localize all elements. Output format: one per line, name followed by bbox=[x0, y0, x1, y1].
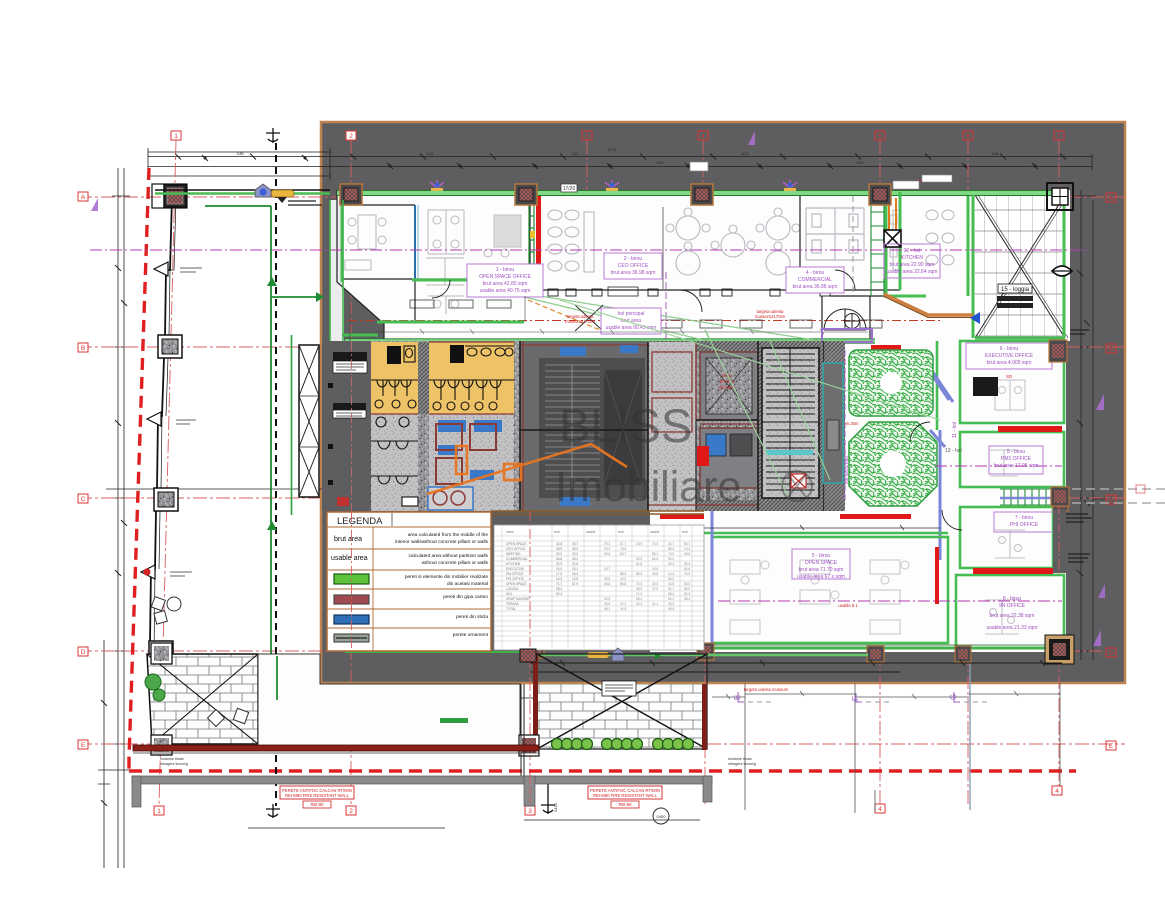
svg-text:24.0: 24.0 bbox=[556, 567, 562, 571]
svg-text:PHI OFFICE: PHI OFFICE bbox=[1010, 522, 1039, 528]
svg-text:96.6: 96.6 bbox=[684, 552, 690, 556]
svg-text:85.0: 85.0 bbox=[668, 547, 674, 551]
svg-text:43.8: 43.8 bbox=[668, 582, 674, 586]
svg-text:33.6: 33.6 bbox=[604, 602, 610, 606]
svg-text:28.4: 28.4 bbox=[556, 587, 562, 591]
svg-text:53.0: 53.0 bbox=[684, 582, 690, 586]
svg-text:pereti din sticla: pereti din sticla bbox=[456, 614, 488, 620]
svg-text:40.4: 40.4 bbox=[652, 582, 658, 586]
svg-text:brut: brut bbox=[618, 530, 624, 534]
svg-text:80.7: 80.7 bbox=[684, 542, 690, 546]
svg-text:museum217/2m: museum217/2m bbox=[755, 314, 786, 319]
svg-text:2 - birou: 2 - birou bbox=[624, 256, 643, 262]
svg-text:KITCHEN: KITCHEN bbox=[901, 255, 923, 261]
svg-text:6 - birou: 6 - birou bbox=[1000, 346, 1019, 352]
svg-text:88.0: 88.0 bbox=[620, 572, 626, 576]
svg-text:3.85: 3.85 bbox=[237, 152, 244, 156]
svg-text:13 - hol: 13 - hol bbox=[945, 448, 962, 454]
svg-text:name: name bbox=[506, 530, 514, 534]
svg-text:C: C bbox=[81, 496, 86, 503]
svg-text:CEO OFFICE: CEO OFFICE bbox=[506, 547, 525, 551]
svg-text:SPATIU: SPATIU bbox=[719, 379, 735, 384]
svg-text:TOTAL: TOTAL bbox=[506, 607, 516, 611]
svg-text:31.1: 31.1 bbox=[652, 602, 658, 606]
svg-text:brut area 71.70 sqm: brut area 71.70 sqm bbox=[799, 567, 844, 573]
svg-text:56.1: 56.1 bbox=[652, 552, 658, 556]
svg-text:2: 2 bbox=[349, 133, 353, 140]
svg-text:EXECUTIVE OFFICE: EXECUTIVE OFFICE bbox=[985, 353, 1034, 359]
svg-text:64.6: 64.6 bbox=[684, 567, 690, 571]
svg-text:9N OFFICE: 9N OFFICE bbox=[999, 603, 1026, 609]
svg-text:calculated area without partit: calculated area without partition walls bbox=[409, 553, 489, 559]
svg-text:usable 8.1: usable 8.1 bbox=[838, 603, 858, 608]
svg-text:GRUP SANITAR: GRUP SANITAR bbox=[506, 597, 530, 601]
svg-text:40.7: 40.7 bbox=[572, 542, 578, 546]
svg-text:11 - hol: 11 - hol bbox=[952, 422, 958, 438]
svg-text:LEGENDA: LEGENDA bbox=[337, 516, 383, 527]
svg-text:brut area 22.38 sqm: brut area 22.38 sqm bbox=[990, 613, 1035, 619]
svg-text:5 - birou: 5 - birou bbox=[1007, 449, 1026, 455]
svg-text:22.9: 22.9 bbox=[556, 562, 562, 566]
svg-text:CEO OFFICE: CEO OFFICE bbox=[618, 263, 649, 269]
svg-text:1: 1 bbox=[157, 808, 161, 815]
svg-text:brut: brut bbox=[682, 530, 688, 534]
svg-text:brut area 22.90 sqm: brut area 22.90 sqm bbox=[890, 262, 935, 268]
svg-text:17/20: 17/20 bbox=[563, 186, 576, 192]
svg-text:C: C bbox=[1109, 497, 1114, 504]
svg-text:brut area 36.98 sqm: brut area 36.98 sqm bbox=[611, 270, 656, 276]
svg-text:4: 4 bbox=[701, 133, 705, 140]
svg-text:68.4: 68.4 bbox=[668, 592, 674, 596]
svg-text:4 - birou: 4 - birou bbox=[806, 270, 825, 276]
svg-text:7 - birou: 7 - birou bbox=[1015, 515, 1034, 521]
svg-text:79.2: 79.2 bbox=[604, 542, 610, 546]
svg-text:SD: SD bbox=[1006, 374, 1012, 379]
svg-text:53.0: 53.0 bbox=[668, 557, 674, 561]
svg-text:93.3: 93.3 bbox=[668, 562, 674, 566]
svg-text:PM1 OFFICE: PM1 OFFICE bbox=[1001, 456, 1032, 462]
svg-text:2.42: 2.42 bbox=[427, 152, 434, 156]
svg-text:BLISS: BLISS bbox=[559, 399, 692, 452]
svg-text:13.4: 13.4 bbox=[684, 547, 690, 551]
svg-text:45.8: 45.8 bbox=[652, 572, 658, 576]
svg-text:16.4: 16.4 bbox=[572, 572, 578, 576]
svg-text:51.8: 51.8 bbox=[636, 562, 642, 566]
svg-text:12.9: 12.9 bbox=[572, 577, 578, 581]
svg-text:55.9: 55.9 bbox=[684, 587, 690, 591]
svg-text:PHI OFFICE: PHI OFFICE bbox=[506, 577, 524, 581]
svg-text:COMMERCIAL: COMMERCIAL bbox=[798, 277, 832, 283]
svg-text:4.10: 4.10 bbox=[572, 152, 579, 156]
svg-text:83.4: 83.4 bbox=[684, 562, 690, 566]
svg-text:12 - hol: 12 - hol bbox=[904, 248, 921, 254]
svg-text:90.4: 90.4 bbox=[556, 592, 562, 596]
svg-text:usable area 40.75 sqm: usable area 40.75 sqm bbox=[480, 288, 531, 294]
svg-text:27.0: 27.0 bbox=[652, 587, 658, 591]
svg-text:14.4: 14.4 bbox=[668, 572, 674, 576]
svg-text:68.8: 68.8 bbox=[604, 582, 610, 586]
svg-text:brut area 36.86 sqm: brut area 36.86 sqm bbox=[793, 284, 838, 290]
svg-text:REI-M60 FIRE RESISTANT WALL: REI-M60 FIRE RESISTANT WALL bbox=[593, 793, 658, 798]
svg-text:32.9: 32.9 bbox=[556, 552, 562, 556]
svg-text:56.2: 56.2 bbox=[668, 577, 674, 581]
svg-text:pereti si elemente din mobilie: pereti si elemente din mobilier realizat… bbox=[405, 574, 489, 580]
svg-text:8 - birou: 8 - birou bbox=[1003, 596, 1022, 602]
svg-text:din acelasi material: din acelasi material bbox=[447, 581, 488, 587]
svg-text:3: 3 bbox=[585, 133, 589, 140]
svg-text:71.7: 71.7 bbox=[556, 582, 562, 586]
svg-text:50.2: 50.2 bbox=[684, 592, 690, 596]
svg-text:52.7: 52.7 bbox=[668, 587, 674, 591]
svg-text:without concrete pillars or wa: without concrete pillars or walls bbox=[422, 560, 489, 566]
svg-text:brut area 42.80 sqm: brut area 42.80 sqm bbox=[483, 281, 528, 287]
svg-text:hordenie titular: hordenie titular bbox=[160, 757, 185, 761]
svg-text:interior wallswithout concrete: interior wallswithout concrete pillars o… bbox=[395, 539, 489, 545]
svg-text:usable area 22.64 sqm: usable area 22.64 sqm bbox=[887, 269, 938, 275]
svg-text:museum217/2m: museum217/2m bbox=[565, 319, 596, 324]
svg-text:hol principal: hol principal bbox=[618, 311, 645, 317]
svg-text:34.7: 34.7 bbox=[668, 542, 674, 546]
svg-text:3: 3 bbox=[528, 808, 532, 815]
svg-text:5 - birou: 5 - birou bbox=[812, 553, 831, 559]
svg-text:PM OFFICE: PM OFFICE bbox=[506, 572, 523, 576]
svg-text:18.7: 18.7 bbox=[604, 567, 610, 571]
svg-text:34.5: 34.5 bbox=[620, 607, 626, 611]
svg-text:1: 1 bbox=[174, 133, 178, 140]
svg-text:3.65: 3.65 bbox=[657, 161, 664, 165]
svg-text:74.4: 74.4 bbox=[636, 582, 642, 586]
svg-text:1 - birou: 1 - birou bbox=[496, 267, 515, 273]
svg-text:OPEN SPACE: OPEN SPACE bbox=[805, 560, 838, 566]
svg-text:0450: 0450 bbox=[657, 814, 667, 819]
svg-text:29.3: 29.3 bbox=[604, 547, 610, 551]
svg-text:0450: 0450 bbox=[553, 802, 558, 812]
svg-text:brut area 4.005 sqm: brut area 4.005 sqm bbox=[987, 360, 1032, 366]
svg-text:pereti din gipa carton: pereti din gipa carton bbox=[443, 594, 488, 600]
svg-text:B: B bbox=[1109, 346, 1113, 353]
svg-text:23.9: 23.9 bbox=[684, 572, 690, 576]
svg-text:area calculated from the middl: area calculated from the middle of the bbox=[408, 532, 489, 538]
svg-text:A: A bbox=[81, 194, 86, 201]
svg-text:87.7: 87.7 bbox=[620, 542, 626, 546]
svg-text:73.3: 73.3 bbox=[668, 552, 674, 556]
svg-text:Imobiliare: Imobiliare bbox=[555, 463, 741, 511]
svg-text:5.35: 5.35 bbox=[992, 152, 999, 156]
svg-text:17.0: 17.0 bbox=[636, 592, 642, 596]
svg-text:brut area: brut area bbox=[621, 318, 641, 324]
svg-text:B: B bbox=[81, 345, 85, 352]
svg-text:38.4: 38.4 bbox=[684, 597, 690, 601]
svg-text:50.5: 50.5 bbox=[604, 597, 610, 601]
svg-text:84.6: 84.6 bbox=[652, 557, 658, 561]
svg-text:43.2: 43.2 bbox=[620, 577, 626, 581]
svg-text:MEETING: MEETING bbox=[506, 552, 521, 556]
svg-text:4: 4 bbox=[1055, 788, 1059, 795]
svg-text:D: D bbox=[81, 649, 86, 656]
svg-text:85.5: 85.5 bbox=[636, 572, 642, 576]
svg-text:usable area 67.x sqm: usable area 67.x sqm bbox=[797, 574, 845, 580]
svg-text:4: 4 bbox=[878, 806, 882, 813]
svg-text:70.4: 70.4 bbox=[652, 542, 658, 546]
svg-text:OPEN SPACE: OPEN SPACE bbox=[506, 582, 527, 586]
svg-text:42.8: 42.8 bbox=[556, 542, 562, 546]
svg-text:18.9: 18.9 bbox=[636, 542, 642, 546]
svg-text:2.90: 2.90 bbox=[857, 161, 864, 165]
svg-text:93.3: 93.3 bbox=[668, 602, 674, 606]
svg-text:83.7: 83.7 bbox=[620, 552, 626, 556]
svg-text:usable: usable bbox=[650, 530, 660, 534]
svg-text:brut area: brut area bbox=[334, 536, 362, 543]
svg-text:REI-M60 FIRE RESISTANT WALL: REI-M60 FIRE RESISTANT WALL bbox=[285, 793, 350, 798]
svg-text:HOL: HOL bbox=[506, 592, 513, 596]
svg-text:59.9: 59.9 bbox=[636, 557, 642, 561]
svg-text:retragere imoveig: retragere imoveig bbox=[160, 762, 188, 766]
svg-text:59.6: 59.6 bbox=[604, 552, 610, 556]
svg-text:22.1: 22.1 bbox=[620, 602, 626, 606]
svg-text:2: 2 bbox=[349, 808, 353, 815]
svg-text:52.3: 52.3 bbox=[636, 602, 642, 606]
svg-text:82.2: 82.2 bbox=[668, 597, 674, 601]
svg-text:E: E bbox=[1109, 743, 1114, 750]
svg-text:TERASA: TERASA bbox=[506, 602, 520, 606]
svg-text:13.3: 13.3 bbox=[556, 577, 562, 581]
svg-text:COMMERCIAL: COMMERCIAL bbox=[506, 557, 528, 561]
svg-text:67.9: 67.9 bbox=[572, 582, 578, 586]
svg-text:EXECUTIVE: EXECUTIVE bbox=[506, 567, 524, 571]
svg-text:OPEN SPACE OFFICE: OPEN SPACE OFFICE bbox=[479, 274, 532, 280]
svg-text:58.1: 58.1 bbox=[636, 597, 642, 601]
svg-text:15 - loggia: 15 - loggia bbox=[1001, 287, 1030, 293]
svg-text:18.6: 18.6 bbox=[652, 567, 658, 571]
svg-text:7: 7 bbox=[1057, 133, 1061, 140]
svg-text:36.8: 36.8 bbox=[556, 557, 562, 561]
svg-text:LOGGIA: LOGGIA bbox=[506, 587, 519, 591]
svg-text:36.9: 36.9 bbox=[556, 547, 562, 551]
svg-text:86.8: 86.8 bbox=[620, 582, 626, 586]
svg-text:38.1: 38.1 bbox=[604, 607, 610, 611]
svg-text:6.00: 6.00 bbox=[742, 152, 749, 156]
svg-text:perete ornament: perete ornament bbox=[453, 632, 489, 638]
svg-text:A: A bbox=[1109, 195, 1114, 202]
svg-text:brut area 17.05 sqm: brut area 17.05 sqm bbox=[994, 463, 1039, 469]
svg-text:D: D bbox=[1109, 650, 1114, 657]
svg-text:76.6: 76.6 bbox=[620, 547, 626, 551]
svg-text:retragere imoveig: retragere imoveig bbox=[728, 762, 756, 766]
svg-text:35.4: 35.4 bbox=[572, 557, 578, 561]
svg-text:usable area 21.33 sqm: usable area 21.33 sqm bbox=[987, 625, 1038, 631]
svg-text:hordenie titular: hordenie titular bbox=[728, 757, 753, 761]
svg-text:targeta udenta museum: targeta udenta museum bbox=[744, 687, 789, 692]
svg-text:E: E bbox=[81, 742, 86, 749]
svg-text:35.0: 35.0 bbox=[572, 547, 578, 551]
svg-text:REI-60: REI-60 bbox=[618, 802, 632, 807]
svg-text:usable area: usable area bbox=[331, 555, 368, 562]
svg-text:30.10: 30.10 bbox=[608, 148, 617, 152]
svg-text:OPEN SPACE: OPEN SPACE bbox=[506, 542, 527, 546]
svg-text:REI-60: REI-60 bbox=[310, 802, 324, 807]
svg-text:22.6: 22.6 bbox=[572, 562, 578, 566]
svg-text:brut: brut bbox=[554, 530, 560, 534]
svg-text:32.0: 32.0 bbox=[572, 552, 578, 556]
svg-text:35.6: 35.6 bbox=[604, 577, 610, 581]
svg-text:58.9: 58.9 bbox=[636, 587, 642, 591]
svg-text:17.0: 17.0 bbox=[556, 572, 562, 576]
svg-text:6: 6 bbox=[966, 133, 970, 140]
svg-text:23.1: 23.1 bbox=[572, 567, 578, 571]
svg-text:45.5: 45.5 bbox=[668, 607, 674, 611]
svg-text:usable: usable bbox=[586, 530, 596, 534]
svg-text:KITCHEN: KITCHEN bbox=[506, 562, 521, 566]
svg-text:5: 5 bbox=[878, 133, 882, 140]
